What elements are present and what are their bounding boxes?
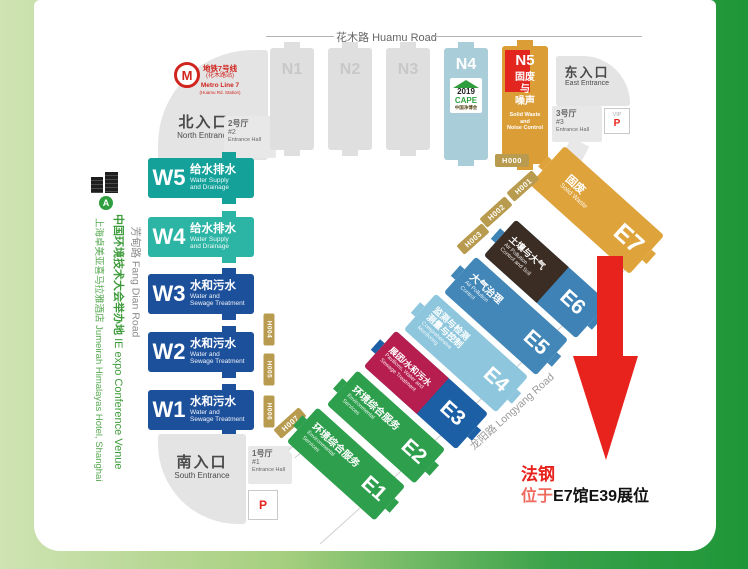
east-entrance-zh: 东入口 <box>552 66 622 80</box>
hall-e3-label: E3 <box>435 396 470 431</box>
w3-en1: Water and <box>190 293 245 300</box>
n5-en2: and <box>502 119 548 126</box>
hall-w2-label: W2 <box>148 339 190 365</box>
w4-zh: 给水排水 <box>190 223 236 236</box>
fangdian-road-label: 芳甸路 Fang Dian Road <box>129 227 144 337</box>
hall2-zh: 2号厅 <box>228 119 272 129</box>
hall-n3-label: N3 <box>398 61 418 78</box>
venue-line2-en: Jumeirah Himalayas Hotel, Shanghai <box>93 325 104 481</box>
hall-w1-label: W1 <box>148 397 190 423</box>
south-parking-icon: P <box>259 499 267 511</box>
hall-n1: N1 <box>270 48 314 150</box>
venue-a-badge: A <box>99 196 113 210</box>
hall1-en: Entrance Hall <box>252 467 288 474</box>
cape-2019-logo: 2019 CAPE 中国净博会 <box>450 78 482 113</box>
metro-logo-glyph: M <box>182 68 193 83</box>
hall-e1-label: E1 <box>356 471 391 506</box>
fangdian-road-zh: 芳甸路 <box>130 227 142 259</box>
w4-en2: and Drainage <box>190 243 236 250</box>
venue-line1-en: IE expo Conference Venue <box>112 338 124 469</box>
venue-line2-zh: 上海卓美亚喜马拉雅酒店 <box>93 218 104 323</box>
vip-parking-icon: P <box>614 119 621 129</box>
w5-en2: and Drainage <box>190 184 236 191</box>
metro-station-label: 地铁7号线 (花木路站) Metro Line 7 (Huamu Rd. Sta… <box>198 64 242 95</box>
booth-location: 位于E7馆E39展位 <box>521 482 649 506</box>
hall-w5: W5 给水排水 Water Supply and Drainage <box>148 158 254 198</box>
n5-en3: Noise Control <box>502 125 548 132</box>
hall-e7-label: E7 <box>608 218 650 260</box>
w3-zh: 水和污水 <box>190 280 245 293</box>
hall-n4: N4 2019 CAPE 中国净博会 <box>444 48 488 160</box>
cape-cn: 中国净博会 <box>450 106 482 111</box>
building-icon <box>90 171 120 193</box>
w2-en2: Sewage Treatment <box>190 358 245 365</box>
venue-line1-zh: 中国环境技术大会举办地 <box>112 214 124 335</box>
south-entrance-zh: 南入口 <box>158 455 246 472</box>
booth-pointer-arrow <box>573 256 638 460</box>
fangdian-road-en: Fang Dian Road <box>130 261 142 337</box>
hall-n5-label: N5 <box>502 52 548 70</box>
expo-floorplan-page: { "colors": { "bg_left": "#cfe3b3", "bg_… <box>0 0 748 569</box>
w3-en2: Sewage Treatment <box>190 300 245 307</box>
hall-n1-label: N1 <box>282 61 302 78</box>
hall-w2: W2 水和污水 Water and Sewage Treatment <box>148 332 254 372</box>
huamu-road-line-left <box>266 36 334 37</box>
hall-n4-label: N4 <box>444 56 488 74</box>
hall3-num: #3 <box>556 119 598 127</box>
south-entrance-en: South Entrance <box>158 472 246 481</box>
huamu-road-line-right <box>432 36 642 37</box>
hall-w3: W3 水和污水 Water and Sewage Treatment <box>148 274 254 314</box>
corridor-h004: H004 <box>264 314 275 346</box>
hall-w3-label: W3 <box>148 281 190 307</box>
w1-zh: 水和污水 <box>190 396 245 409</box>
hall-n5: N5 固废 与 噪声 Solid Waste and Noise Control <box>502 46 548 164</box>
venue-line2: 上海卓美亚喜马拉雅酒店 Jumeirah Himalayas Hotel, Sh… <box>93 218 107 468</box>
hall-w4-label: W4 <box>148 224 190 250</box>
n5-zh1: 固废 <box>502 72 548 84</box>
hall1-zh: 1号厅 <box>252 449 288 459</box>
hall3-zh: 3号厅 <box>556 109 598 119</box>
hall-w5-label: W5 <box>148 165 190 191</box>
corridor-h000: H000 <box>495 154 529 167</box>
hall-w1: W1 水和污水 Water and Sewage Treatment <box>148 390 254 430</box>
booth-location-value: E7馆E39展位 <box>553 488 649 505</box>
n5-zh3: 噪声 <box>502 96 548 108</box>
n5-zh2: 与 <box>502 84 548 96</box>
w1-en1: Water and <box>190 409 245 416</box>
hall-e4-label: E4 <box>478 362 513 397</box>
metro-station-zh: (花木路站) <box>198 73 242 80</box>
w2-en1: Water and <box>190 351 245 358</box>
corridor-h005: H005 <box>264 354 275 386</box>
w5-zh: 给水排水 <box>190 164 236 177</box>
w5-en1: Water Supply <box>190 177 236 184</box>
hall-n2-label: N2 <box>340 61 360 78</box>
east-entrance-label: 东入口 East Entrance <box>552 66 622 88</box>
hall2-en: Entrance Hall <box>228 137 272 144</box>
n5-en1: Solid Waste <box>502 112 548 119</box>
w2-zh: 水和污水 <box>190 338 245 351</box>
venue-line1: 中国环境技术大会举办地 IE expo Conference Venue <box>111 214 127 438</box>
hall-w4: W4 给水排水 Water Supply and Drainage <box>148 217 254 257</box>
vip-parking-badge: VIP P <box>604 108 630 134</box>
south-parking-badge: P <box>248 490 278 520</box>
hall-e2-label: E2 <box>396 434 431 469</box>
hall3-en: Entrance Hall <box>556 127 598 134</box>
south-entrance-label: 南入口 South Entrance <box>158 455 246 480</box>
metro-logo-icon: M <box>174 62 200 88</box>
east-entrance-en: East Entrance <box>552 80 622 88</box>
corridor-h006: H006 <box>264 396 275 428</box>
entrance-hall-1: 1号厅 #1 Entrance Hall <box>248 446 292 484</box>
booth-location-prefix: 位于 <box>521 488 553 505</box>
w4-en1: Water Supply <box>190 236 236 243</box>
metro-line-zh: 地铁7号线 <box>198 64 242 73</box>
hall-n2: N2 <box>328 48 372 150</box>
hall-n3: N3 <box>386 48 430 150</box>
w1-en2: Sewage Treatment <box>190 416 245 423</box>
metro-station-en: (Huamu Rd. Station) <box>198 90 242 95</box>
hall2-num: #2 <box>228 129 272 137</box>
hall1-num: #1 <box>252 459 288 467</box>
metro-line-en: Metro Line 7 <box>198 82 242 90</box>
entrance-hall-3: 3号厅 #3 Entrance Hall <box>552 106 602 142</box>
hall-e5-label: E5 <box>518 325 553 360</box>
